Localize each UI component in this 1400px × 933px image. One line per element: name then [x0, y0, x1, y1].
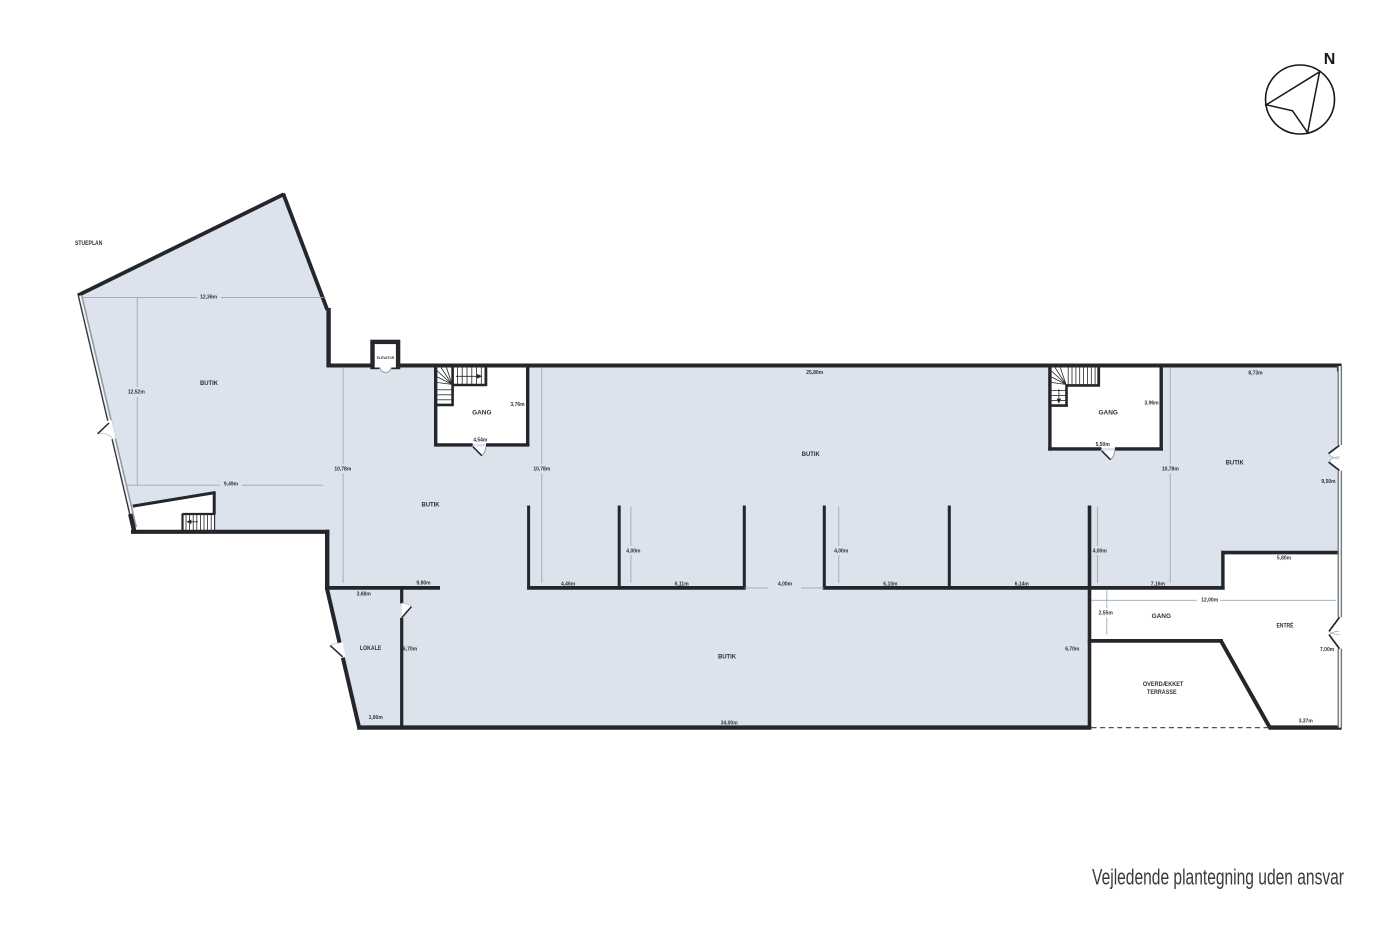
- svg-text:4,00m: 4,00m: [834, 548, 849, 554]
- svg-text:4,54m: 4,54m: [473, 438, 488, 444]
- svg-text:12,36m: 12,36m: [200, 295, 218, 301]
- svg-text:25,80m: 25,80m: [806, 370, 824, 376]
- svg-text:LOKALE: LOKALE: [360, 645, 382, 652]
- svg-text:1,00m: 1,00m: [369, 715, 384, 721]
- svg-text:4,00m: 4,00m: [778, 582, 793, 588]
- svg-text:6,10m: 6,10m: [883, 582, 898, 588]
- svg-text:STUEPLAN: STUEPLAN: [75, 240, 102, 247]
- svg-text:3,37m: 3,37m: [1299, 719, 1314, 725]
- svg-text:GANG: GANG: [472, 410, 491, 417]
- svg-text:BUTIK: BUTIK: [802, 451, 820, 458]
- svg-text:10,78m: 10,78m: [1162, 467, 1180, 473]
- svg-text:Vejledende plantegning uden an: Vejledende plantegning uden ansvar: [1092, 865, 1344, 891]
- svg-text:GANG: GANG: [1099, 410, 1118, 417]
- svg-text:ENTRÉ: ENTRÉ: [1276, 621, 1293, 630]
- svg-text:BUTIK: BUTIK: [421, 502, 439, 509]
- svg-text:3,68m: 3,68m: [357, 592, 372, 598]
- svg-text:N: N: [1324, 51, 1336, 68]
- svg-text:7,16m: 7,16m: [1151, 582, 1166, 588]
- svg-text:12,00m: 12,00m: [1201, 597, 1219, 603]
- svg-text:3,76m: 3,76m: [510, 402, 525, 408]
- svg-text:BUTIK: BUTIK: [200, 380, 218, 387]
- svg-text:ELEVATOR: ELEVATOR: [377, 355, 395, 360]
- svg-text:GANG: GANG: [1152, 613, 1171, 620]
- svg-text:10,78m: 10,78m: [334, 467, 352, 473]
- svg-text:6,70m: 6,70m: [1065, 646, 1080, 652]
- svg-text:12,52m: 12,52m: [128, 390, 146, 396]
- svg-text:BUTIK: BUTIK: [1226, 460, 1244, 467]
- svg-text:5,80m: 5,80m: [1277, 556, 1292, 562]
- svg-text:6,11m: 6,11m: [675, 582, 689, 588]
- svg-text:3,96m: 3,96m: [1144, 401, 1159, 407]
- svg-text:9,80m: 9,80m: [416, 580, 431, 586]
- svg-text:9,50m: 9,50m: [1321, 479, 1336, 485]
- svg-text:6,14m: 6,14m: [1015, 582, 1030, 588]
- svg-text:OVERDÆKKET: OVERDÆKKET: [1143, 681, 1184, 688]
- svg-text:BUTIK: BUTIK: [718, 654, 736, 661]
- svg-text:34,00m: 34,00m: [721, 721, 739, 727]
- svg-text:9,49m: 9,49m: [224, 481, 239, 487]
- svg-text:6,70m: 6,70m: [403, 646, 418, 652]
- svg-text:7,00m: 7,00m: [1320, 647, 1335, 653]
- svg-text:8,73m: 8,73m: [1248, 370, 1263, 376]
- svg-text:4,46m: 4,46m: [561, 582, 576, 588]
- svg-text:2,55m: 2,55m: [1099, 611, 1114, 617]
- svg-text:10,78m: 10,78m: [533, 467, 551, 473]
- svg-text:4,00m: 4,00m: [1093, 548, 1108, 554]
- svg-text:4,00m: 4,00m: [626, 548, 641, 554]
- svg-text:5,50m: 5,50m: [1096, 442, 1111, 448]
- svg-text:TERRASSE: TERRASSE: [1147, 689, 1177, 696]
